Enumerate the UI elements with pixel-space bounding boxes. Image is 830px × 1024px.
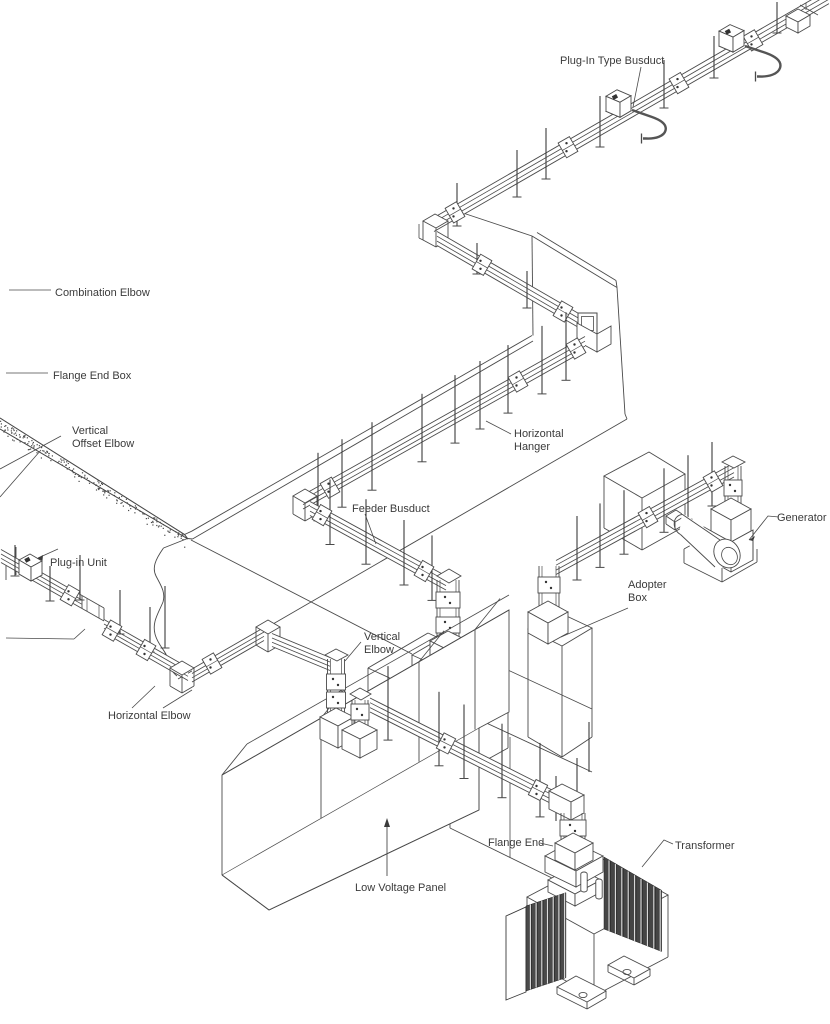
svg-text:Flange End: Flange End bbox=[488, 837, 544, 849]
svg-text:Plug-In Type Busduct: Plug-In Type Busduct bbox=[560, 55, 664, 67]
svg-text:Offset Elbow: Offset Elbow bbox=[72, 438, 134, 450]
svg-text:Combination Elbow: Combination Elbow bbox=[55, 287, 150, 299]
svg-text:Plug-in Unit: Plug-in Unit bbox=[50, 557, 107, 569]
svg-text:Hanger: Hanger bbox=[514, 441, 550, 453]
svg-text:Vertical: Vertical bbox=[364, 631, 400, 643]
svg-text:Feeder Busduct: Feeder Busduct bbox=[352, 503, 430, 515]
svg-text:Low Voltage Panel: Low Voltage Panel bbox=[355, 882, 446, 894]
svg-text:Generator: Generator bbox=[777, 512, 827, 524]
svg-text:Box: Box bbox=[628, 592, 647, 604]
svg-text:Elbow: Elbow bbox=[364, 644, 394, 656]
svg-text:Vertical: Vertical bbox=[72, 425, 108, 437]
svg-text:Horizontal: Horizontal bbox=[514, 428, 564, 440]
svg-text:Flange End Box: Flange End Box bbox=[53, 370, 132, 382]
svg-text:Horizontal Elbow: Horizontal Elbow bbox=[108, 710, 191, 722]
svg-text:Adopter: Adopter bbox=[628, 579, 667, 591]
svg-text:Transformer: Transformer bbox=[675, 840, 735, 852]
